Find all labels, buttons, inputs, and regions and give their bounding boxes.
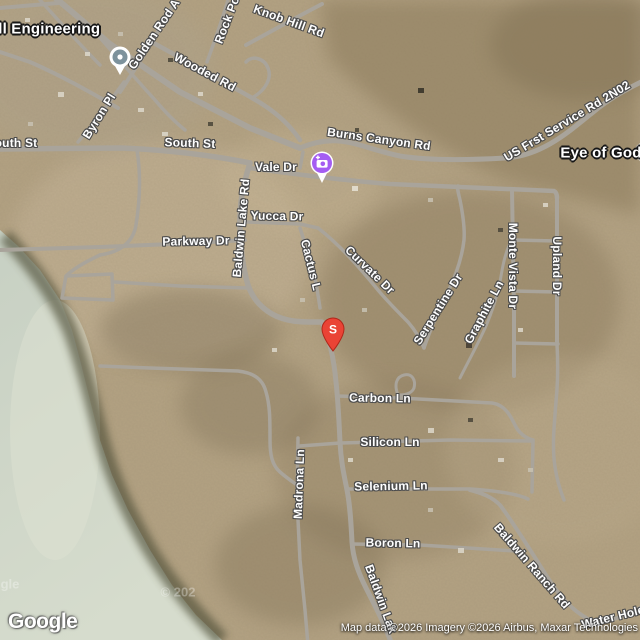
google-maps-satellite-view[interactable]: rill EngineeringEye of GodGolden Rod ARo…	[0, 0, 640, 640]
google-logo[interactable]: Google	[8, 610, 77, 634]
pin-letter: S	[329, 323, 337, 337]
map-attribution: Map data ©2026 Imagery ©2026 Airbus, Max…	[341, 622, 638, 634]
